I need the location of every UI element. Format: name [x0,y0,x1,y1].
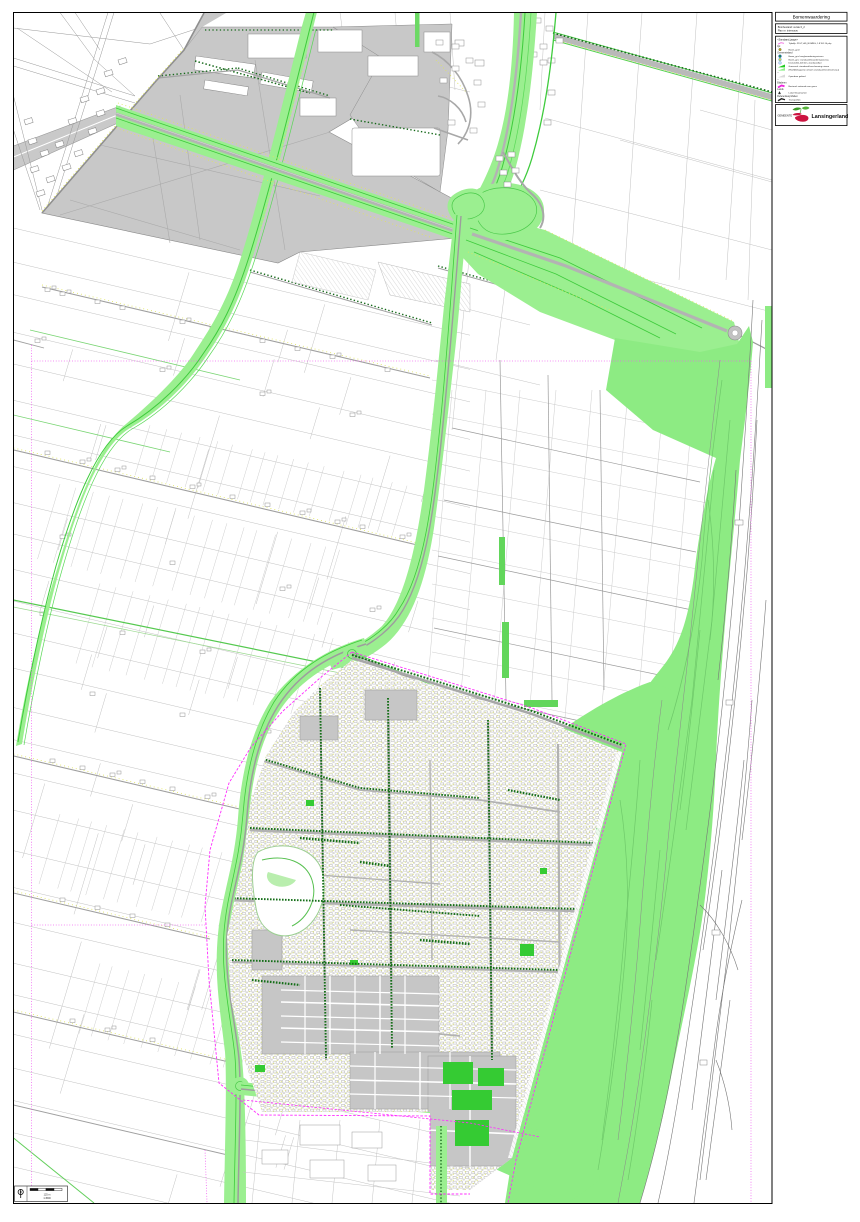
svg-text:(Hoofdbeluga/van onkuim standa: (Hoofdbeluga/van onkuim standaard bestek… [789,68,840,71]
svg-text:Plan nr: intervouw: Plan nr: intervouw [778,29,798,32]
svg-text:Lands: Lands [777,89,784,91]
svg-text:Boom_gris: standaard/waarderin: Boom_gris: standaard/waarderingsniveau [789,58,830,61]
svg-text:1:4500: 1:4500 [43,1197,51,1200]
svg-text:Openbaar gebied: Openbaar gebied [789,75,807,78]
svg-text:--: -- [777,73,779,75]
svg-text:Boom_gris hoog/waarderingsnive: Boom_gris hoog/waarderingsniveau [789,55,825,58]
svg-text:Lokal Straatnamen: Lokal Straatnamen [789,92,808,95]
svg-text:Bomenwaardering: Bomenwaardering [793,15,831,20]
svg-text:Gemeenteland: Gemeenteland [777,52,793,55]
svg-text:Tijdelijk: PLUT, AD_BOMNG, 1.8: Tijdelijk: PLUT, AD_BOMNG, 1.8.W1.10 php [789,42,833,45]
svg-text:Referentiesymbolen: Referentiesymbolen [777,95,798,98]
svg-text:lijn:: lijn: [777,46,781,48]
svg-text:<Standaard_jaagm>: <Standaard_jaagm> [777,38,798,41]
svg-text:Boom_geel: Boom_geel [789,49,801,51]
svg-text:GEMEENTE: GEMEENTE [778,114,793,118]
svg-text:--: -- [777,79,779,81]
svg-text:Bestand: nationale een grens: Bestand: nationale een grens [789,85,818,88]
svg-text:Bronbestand: versie 0_2: Bronbestand: versie 0_2 [778,26,806,29]
svg-text:bestandskl_behken_standaardlij: bestandskl_behken_standaardlijst [789,62,822,65]
svg-text:Lansingerland: Lansingerland [812,114,849,120]
svg-text:Groenvak: standaard boschermin: Groenvak: standaard boscherming niveau [789,65,830,68]
svg-text:Transportlijn: Transportlijn [789,98,802,101]
svg-text:Bladeren: Bladeren [777,82,787,85]
